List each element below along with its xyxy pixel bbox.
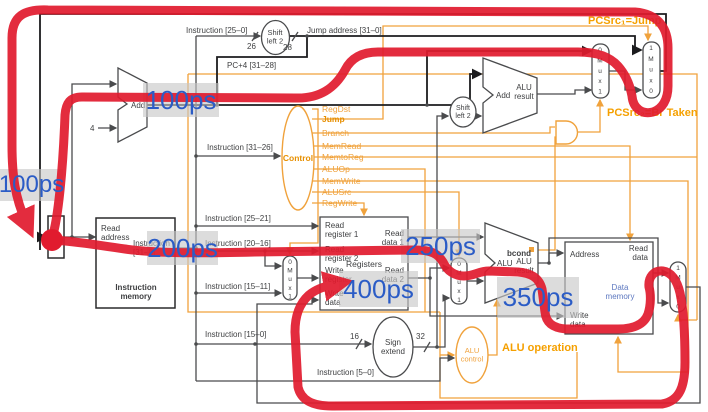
timing-label-350ps: 350ps [497,277,579,318]
datapath-slide: PC Readaddress Instruction[31–0] Instruc… [0,0,708,412]
critical-path-pc-loop [12,10,668,238]
timing-label-100ps-left: 100ps [0,169,63,201]
timing-label-250ps: 250ps [401,229,480,263]
critical-path-annotations [0,0,708,412]
pc-start-dot [41,229,63,251]
timing-label-200ps: 200ps [147,231,218,265]
timing-label-400ps: 400ps [339,271,418,307]
timing-label-100ps-top: 100ps [143,83,219,117]
